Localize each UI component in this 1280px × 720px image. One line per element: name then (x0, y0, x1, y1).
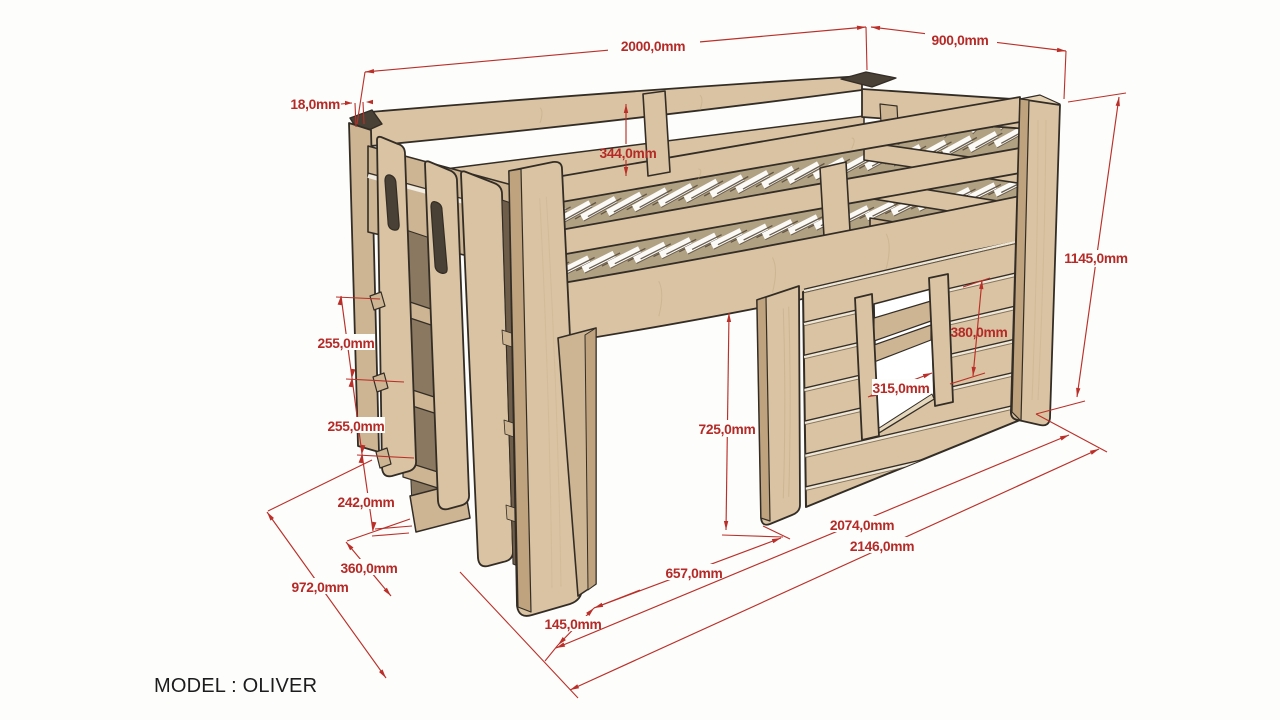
svg-text:255,0mm: 255,0mm (318, 336, 375, 351)
svg-text:360,0mm: 360,0mm (341, 561, 398, 576)
svg-text:657,0mm: 657,0mm (666, 566, 723, 581)
svg-text:2146,0mm: 2146,0mm (850, 539, 914, 554)
svg-text:MODEL : OLIVER: MODEL : OLIVER (154, 675, 317, 697)
svg-text:1145,0mm: 1145,0mm (1064, 251, 1128, 266)
svg-text:2000,0mm: 2000,0mm (621, 39, 685, 54)
svg-text:242,0mm: 242,0mm (338, 495, 395, 510)
svg-text:344,0mm: 344,0mm (600, 146, 657, 161)
svg-text:18,0mm: 18,0mm (290, 97, 340, 112)
svg-text:315,0mm: 315,0mm (873, 381, 930, 396)
svg-text:145,0mm: 145,0mm (545, 617, 602, 632)
svg-text:255,0mm: 255,0mm (328, 419, 385, 434)
svg-text:900,0mm: 900,0mm (932, 33, 989, 48)
svg-text:380,0mm: 380,0mm (951, 325, 1008, 340)
svg-text:725,0mm: 725,0mm (699, 422, 756, 437)
svg-text:2074,0mm: 2074,0mm (830, 518, 894, 533)
svg-text:972,0mm: 972,0mm (292, 580, 349, 595)
